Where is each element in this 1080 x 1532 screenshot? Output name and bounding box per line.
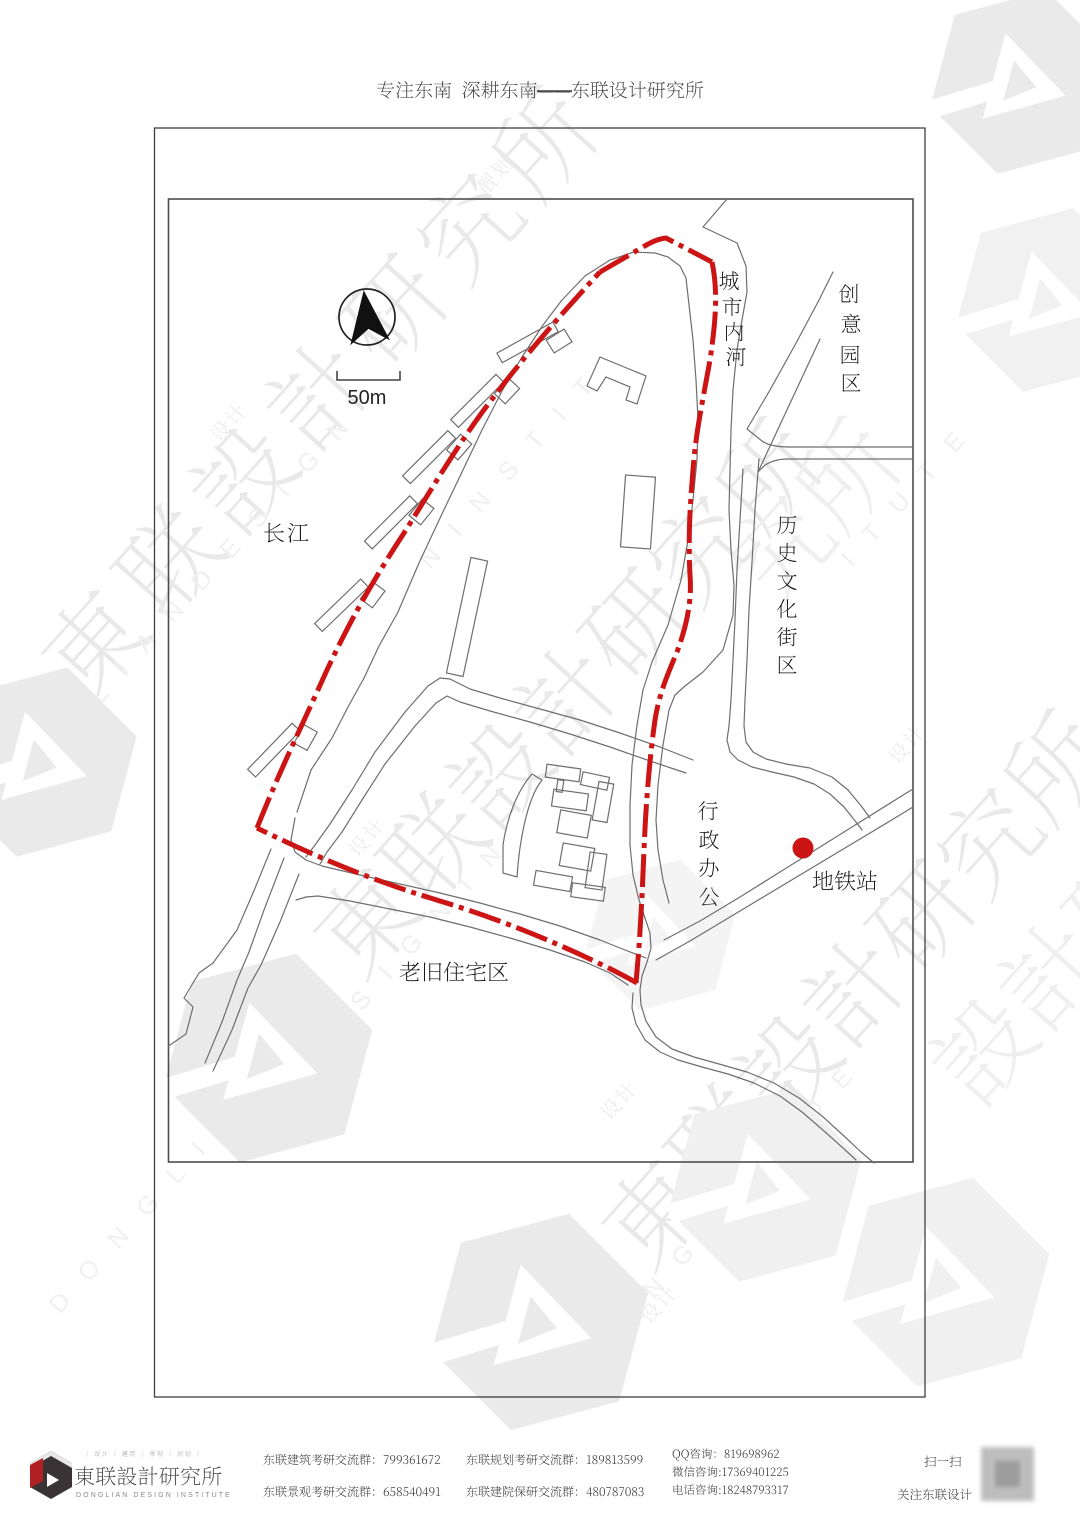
svg-text:DONGLIAN DESIGN INSTITUTE: DONGLIAN DESIGN INSTITUTE <box>76 1492 232 1499</box>
svg-text:50m: 50m <box>348 387 387 409</box>
